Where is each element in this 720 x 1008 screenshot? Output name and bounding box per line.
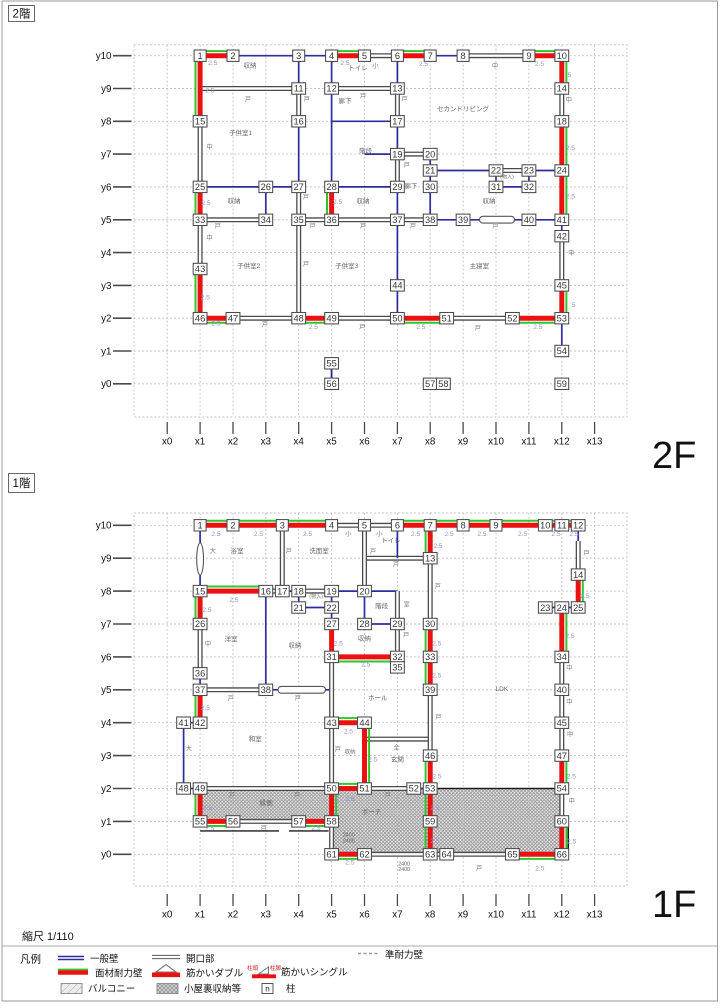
svg-text:61: 61 [326, 850, 336, 860]
svg-text:子供室2: 子供室2 [237, 261, 261, 270]
svg-text:2.5: 2.5 [201, 705, 210, 712]
svg-text:49: 49 [326, 313, 336, 323]
svg-text:5: 5 [572, 302, 576, 309]
svg-text:y5: y5 [101, 685, 112, 696]
svg-text:x9: x9 [458, 437, 468, 448]
svg-text:x1: x1 [195, 437, 205, 448]
svg-text:x12: x12 [554, 910, 570, 921]
svg-text:2.5: 2.5 [205, 88, 214, 95]
svg-text:収納: 収納 [483, 196, 496, 205]
svg-text:筋かいシングル: 筋かいシングル [281, 967, 348, 979]
svg-text:12: 12 [326, 84, 336, 94]
svg-text:2.5: 2.5 [333, 199, 342, 206]
svg-text:54: 54 [557, 346, 567, 356]
svg-text:戸: 戸 [402, 96, 408, 103]
svg-text:42: 42 [557, 231, 567, 241]
svg-text:2.5: 2.5 [533, 324, 542, 331]
svg-text:57: 57 [294, 817, 304, 827]
svg-text:x11: x11 [521, 910, 536, 921]
svg-text:柱: 柱 [286, 983, 296, 995]
svg-text:14: 14 [573, 570, 583, 580]
svg-text:x1: x1 [195, 910, 205, 921]
svg-text:戸: 戸 [286, 548, 292, 555]
svg-text:48: 48 [294, 313, 304, 323]
svg-text:10: 10 [540, 521, 550, 531]
svg-text:2.5: 2.5 [445, 531, 454, 538]
svg-text:59: 59 [425, 817, 435, 827]
svg-text:y3: y3 [101, 281, 112, 292]
svg-text:2.5: 2.5 [303, 531, 312, 538]
svg-text:2.5: 2.5 [432, 641, 441, 648]
svg-text:15: 15 [195, 117, 205, 127]
svg-text:36: 36 [326, 215, 336, 225]
svg-text:37: 37 [195, 685, 205, 695]
svg-text:2: 2 [230, 51, 235, 61]
svg-text:17: 17 [392, 117, 402, 127]
svg-text:中: 中 [566, 698, 572, 706]
svg-text:43: 43 [326, 718, 336, 728]
svg-text:1F: 1F [652, 884, 696, 926]
svg-text:x7: x7 [392, 437, 402, 448]
svg-text:x2: x2 [228, 437, 238, 448]
svg-text:38: 38 [261, 685, 271, 695]
svg-text:y1: y1 [101, 346, 111, 357]
svg-text:x10: x10 [488, 437, 504, 448]
svg-text:小: 小 [376, 530, 383, 538]
svg-text:戸: 戸 [476, 866, 482, 873]
svg-text:2.5: 2.5 [205, 826, 214, 833]
svg-text:17: 17 [277, 586, 287, 596]
svg-text:2.5: 2.5 [416, 324, 425, 331]
svg-text:59: 59 [557, 379, 567, 389]
svg-text:2.5: 2.5 [432, 774, 441, 781]
svg-text:39: 39 [425, 685, 435, 695]
svg-text:準耐力壁: 準耐力壁 [385, 949, 424, 961]
svg-text:36: 36 [195, 669, 205, 679]
svg-text:26: 26 [261, 182, 271, 192]
svg-text:全: 全 [394, 744, 401, 752]
svg-text:31: 31 [326, 652, 336, 662]
svg-text:1: 1 [198, 521, 203, 531]
svg-text:2.5: 2.5 [411, 531, 420, 538]
svg-text:戸: 戸 [335, 747, 341, 754]
svg-text:2.5: 2.5 [203, 805, 212, 812]
svg-text:8: 8 [461, 521, 466, 531]
svg-text:y8: y8 [101, 117, 112, 128]
svg-text:2階: 2階 [13, 7, 31, 21]
svg-text:6: 6 [395, 521, 400, 531]
svg-text:50: 50 [326, 784, 336, 794]
svg-text:収納: 収納 [288, 641, 301, 650]
svg-text:18: 18 [557, 117, 567, 127]
svg-text:2.5: 2.5 [254, 531, 263, 538]
svg-text:(物入): (物入) [500, 173, 514, 181]
svg-text:44: 44 [359, 718, 369, 728]
svg-text:2.5: 2.5 [430, 805, 439, 812]
svg-text:33: 33 [425, 652, 435, 662]
svg-text:33: 33 [195, 215, 205, 225]
svg-text:戸: 戸 [245, 97, 251, 104]
svg-text:x6: x6 [359, 437, 370, 448]
svg-text:y0: y0 [101, 379, 112, 390]
svg-text:20: 20 [425, 149, 435, 159]
svg-text:56: 56 [326, 379, 336, 389]
svg-text:y6: y6 [101, 182, 112, 193]
svg-text:55: 55 [326, 359, 336, 369]
svg-text:2.5: 2.5 [477, 531, 486, 538]
svg-text:中: 中 [566, 664, 572, 672]
svg-text:66: 66 [557, 850, 567, 860]
svg-text:2.5: 2.5 [566, 193, 575, 200]
svg-text:階段: 階段 [375, 601, 389, 610]
svg-text:戸: 戸 [393, 562, 399, 569]
svg-text:中: 中 [568, 249, 574, 257]
svg-text:2.5: 2.5 [419, 61, 428, 68]
svg-text:トイレ: トイレ [381, 538, 401, 545]
svg-text:25: 25 [573, 603, 583, 613]
svg-text:7: 7 [428, 51, 433, 61]
svg-text:29: 29 [392, 182, 402, 192]
svg-text:1: 1 [198, 51, 203, 61]
svg-text:26: 26 [195, 619, 205, 629]
svg-text:2.5: 2.5 [433, 543, 442, 550]
svg-text:28: 28 [359, 619, 369, 629]
svg-text:65: 65 [507, 850, 517, 860]
svg-text:戸: 戸 [360, 93, 366, 100]
svg-text:凡例: 凡例 [20, 953, 41, 966]
svg-text:n: n [265, 985, 269, 994]
svg-text:31: 31 [491, 182, 501, 192]
svg-text:縮尺 1/110: 縮尺 1/110 [22, 929, 74, 943]
svg-text:2.5: 2.5 [312, 825, 321, 832]
svg-text:2.5: 2.5 [535, 866, 544, 873]
svg-text:52: 52 [507, 313, 517, 323]
svg-text:34: 34 [557, 652, 567, 662]
svg-text:x13: x13 [587, 910, 603, 921]
svg-text:13: 13 [392, 84, 402, 94]
svg-text:x3: x3 [261, 437, 272, 448]
svg-text:2.5: 2.5 [368, 757, 377, 764]
svg-text:x6: x6 [359, 910, 370, 921]
svg-text:24: 24 [557, 166, 567, 176]
svg-text:浴室: 浴室 [231, 546, 245, 555]
svg-text:46: 46 [195, 313, 205, 323]
svg-text:25: 25 [195, 182, 205, 192]
svg-text:41: 41 [557, 215, 567, 225]
svg-text:y2: y2 [101, 314, 111, 325]
svg-text:2.5: 2.5 [518, 531, 527, 538]
svg-text:9: 9 [493, 521, 498, 531]
svg-text:大: 大 [210, 547, 216, 555]
svg-text:50: 50 [392, 313, 402, 323]
svg-text:廊下: 廊下 [405, 181, 419, 190]
svg-text:戸: 戸 [583, 550, 589, 557]
svg-text:32: 32 [524, 182, 534, 192]
svg-text:2.5: 2.5 [567, 774, 576, 781]
svg-text:一般壁: 一般壁 [90, 953, 119, 965]
svg-text:2.5: 2.5 [552, 531, 561, 538]
svg-text:x4: x4 [294, 437, 305, 448]
svg-text:19: 19 [326, 586, 336, 596]
svg-text:2.5: 2.5 [565, 633, 574, 640]
svg-text:戸: 戸 [435, 714, 441, 721]
svg-text:2.5: 2.5 [432, 673, 441, 680]
svg-text:9: 9 [526, 51, 531, 61]
svg-text:6: 6 [395, 51, 400, 61]
svg-text:19: 19 [392, 149, 402, 159]
svg-text:x5: x5 [326, 910, 337, 921]
svg-text:小屋裏収納等: 小屋裏収納等 [184, 983, 242, 995]
svg-text:戸: 戸 [229, 793, 235, 800]
svg-text:x0: x0 [162, 437, 173, 448]
svg-text:2.5: 2.5 [202, 607, 211, 614]
svg-text:52: 52 [409, 784, 419, 794]
svg-text:和室: 和室 [249, 734, 263, 743]
svg-text:収納: 収納 [357, 196, 370, 205]
svg-text:23: 23 [524, 166, 534, 176]
svg-text:小: 小 [372, 62, 379, 70]
svg-text:58: 58 [326, 817, 336, 827]
svg-text:18: 18 [294, 586, 304, 596]
svg-text:収納: 収納 [358, 634, 371, 643]
svg-text:2.5: 2.5 [334, 641, 343, 648]
svg-text:27: 27 [326, 619, 336, 629]
svg-text:戸: 戸 [228, 696, 234, 703]
svg-text:x10: x10 [488, 910, 504, 921]
svg-text:5: 5 [336, 797, 340, 804]
svg-text:27: 27 [294, 182, 304, 192]
svg-text:2.5: 2.5 [201, 295, 210, 302]
svg-text:戸: 戸 [492, 223, 498, 230]
svg-text:縁側: 縁側 [260, 798, 274, 807]
svg-text:13: 13 [425, 553, 435, 563]
svg-text:x8: x8 [425, 437, 436, 448]
svg-text:小: 小 [345, 530, 352, 538]
svg-text:64: 64 [442, 850, 452, 860]
svg-text:子供室1: 子供室1 [229, 128, 253, 137]
svg-text:x8: x8 [425, 910, 436, 921]
svg-text:戸: 戸 [309, 223, 315, 230]
svg-text:5: 5 [362, 51, 367, 61]
svg-text:玄関: 玄関 [391, 755, 404, 764]
svg-text:24: 24 [557, 603, 567, 613]
svg-text:中: 中 [205, 640, 211, 648]
svg-text:2.5: 2.5 [309, 324, 318, 331]
svg-text:中: 中 [492, 62, 498, 70]
svg-text:47: 47 [557, 751, 567, 761]
svg-text:15: 15 [195, 586, 205, 596]
svg-text:戸: 戸 [215, 223, 221, 230]
svg-text:トイレ: トイレ [348, 65, 368, 72]
svg-text:22: 22 [326, 603, 336, 613]
svg-text:45: 45 [557, 281, 567, 291]
svg-text:y2: y2 [101, 784, 111, 795]
svg-text:x2: x2 [228, 910, 238, 921]
svg-text:x5: x5 [326, 437, 337, 448]
svg-text:39: 39 [458, 215, 468, 225]
svg-text:2400: 2400 [398, 867, 410, 873]
svg-text:2.5: 2.5 [201, 200, 210, 207]
svg-text:大: 大 [186, 745, 192, 753]
svg-text:53: 53 [425, 784, 435, 794]
svg-text:2.5: 2.5 [211, 531, 220, 538]
svg-text:60: 60 [557, 817, 567, 827]
svg-text:筋かいダブル: 筋かいダブル [186, 968, 244, 980]
svg-text:収納: 収納 [244, 61, 257, 70]
svg-text:55: 55 [195, 817, 205, 827]
svg-text:戸: 戸 [403, 632, 409, 639]
svg-text:y1: y1 [101, 817, 111, 828]
svg-text:戸: 戸 [385, 793, 391, 800]
svg-text:20: 20 [359, 586, 369, 596]
svg-text:11: 11 [294, 84, 304, 94]
svg-text:32: 32 [392, 652, 402, 662]
svg-text:x7: x7 [392, 910, 402, 921]
svg-text:2.5: 2.5 [340, 60, 349, 67]
svg-text:戸: 戸 [303, 261, 309, 268]
svg-text:廊下: 廊下 [339, 96, 353, 105]
svg-text:34: 34 [261, 215, 271, 225]
svg-text:40: 40 [557, 685, 567, 695]
svg-text:2.5: 2.5 [569, 531, 578, 538]
svg-text:LDK: LDK [496, 686, 509, 693]
svg-text:46: 46 [425, 751, 435, 761]
svg-text:戸: 戸 [303, 194, 309, 201]
svg-text:5: 5 [362, 521, 367, 531]
svg-text:中: 中 [569, 797, 575, 805]
svg-text:2.5: 2.5 [430, 838, 439, 845]
svg-text:4: 4 [329, 51, 334, 61]
svg-text:戸: 戸 [294, 793, 300, 800]
svg-text:主寝室: 主寝室 [470, 261, 490, 270]
svg-text:48: 48 [178, 784, 188, 794]
svg-text:2F: 2F [652, 435, 696, 477]
svg-text:38: 38 [425, 215, 435, 225]
svg-text:y5: y5 [101, 215, 112, 226]
svg-text:x12: x12 [554, 437, 570, 448]
svg-text:開口部: 開口部 [186, 953, 215, 965]
svg-text:戸: 戸 [360, 223, 366, 230]
svg-text:16: 16 [294, 117, 304, 127]
svg-text:2.5: 2.5 [345, 860, 354, 867]
svg-text:x0: x0 [162, 910, 173, 921]
svg-text:1階: 1階 [13, 476, 31, 490]
svg-text:11: 11 [557, 521, 567, 531]
svg-text:63: 63 [425, 850, 435, 860]
svg-text:洋室: 洋室 [225, 634, 239, 643]
svg-text:子供室3: 子供室3 [335, 261, 359, 270]
svg-text:x9: x9 [458, 910, 468, 921]
svg-text:14: 14 [557, 84, 567, 94]
svg-text:x4: x4 [294, 910, 305, 921]
svg-text:12: 12 [573, 521, 583, 531]
svg-text:洗面室: 洗面室 [309, 546, 329, 555]
svg-text:2400: 2400 [343, 838, 355, 844]
svg-text:中: 中 [567, 731, 573, 739]
svg-text:2.5: 2.5 [211, 321, 220, 328]
svg-text:2.5: 2.5 [361, 661, 370, 668]
svg-text:戸: 戸 [410, 223, 416, 230]
svg-text:y9: y9 [101, 554, 111, 565]
svg-text:2.5: 2.5 [229, 597, 238, 604]
svg-text:戸: 戸 [435, 584, 441, 591]
svg-text:2: 2 [230, 521, 235, 531]
svg-text:2.5: 2.5 [535, 61, 544, 68]
svg-text:y10: y10 [96, 521, 112, 532]
svg-text:室: 室 [404, 601, 410, 609]
svg-text:戸: 戸 [359, 324, 365, 331]
svg-text:戸: 戸 [295, 695, 301, 702]
svg-text:戸: 戸 [370, 549, 376, 556]
svg-text:8: 8 [461, 51, 466, 61]
svg-text:40: 40 [524, 215, 534, 225]
svg-text:35: 35 [392, 663, 402, 673]
svg-text:柱脚: 柱脚 [270, 964, 282, 972]
svg-text:2.5: 2.5 [567, 839, 576, 846]
svg-text:バルコニー: バルコニー [88, 984, 135, 995]
svg-text:4: 4 [329, 521, 334, 531]
svg-text:y0: y0 [101, 850, 112, 861]
svg-text:2.5: 2.5 [580, 593, 589, 600]
svg-text:x13: x13 [587, 437, 603, 448]
svg-text:面材耐力壁: 面材耐力壁 [95, 968, 143, 980]
svg-text:中: 中 [206, 234, 212, 242]
svg-text:ポーチ: ポーチ [362, 808, 382, 816]
svg-text:(物入): (物入) [309, 592, 323, 600]
svg-text:2.5: 2.5 [344, 729, 353, 736]
svg-text:23: 23 [540, 603, 550, 613]
svg-text:y8: y8 [101, 587, 112, 598]
svg-text:ホール: ホール [368, 694, 388, 702]
svg-text:戸: 戸 [404, 162, 410, 169]
svg-text:中: 中 [206, 143, 212, 151]
svg-text:戸: 戸 [304, 96, 310, 103]
svg-text:53: 53 [557, 313, 567, 323]
svg-text:y4: y4 [101, 248, 112, 259]
svg-text:28: 28 [326, 182, 336, 192]
svg-text:中: 中 [566, 96, 572, 104]
svg-text:戸: 戸 [261, 826, 267, 833]
svg-text:2.5: 2.5 [345, 796, 354, 803]
svg-text:x3: x3 [261, 910, 272, 921]
svg-text:37: 37 [392, 215, 402, 225]
svg-text:41: 41 [178, 718, 188, 728]
svg-text:柱頭: 柱頭 [247, 964, 259, 972]
svg-text:y9: y9 [101, 84, 111, 95]
svg-text:21: 21 [425, 166, 435, 176]
svg-text:35: 35 [294, 215, 304, 225]
svg-text:戸: 戸 [262, 322, 268, 329]
svg-text:y7: y7 [101, 150, 111, 161]
svg-text:47: 47 [228, 313, 238, 323]
svg-text:30: 30 [425, 619, 435, 629]
svg-text:x11: x11 [521, 437, 536, 448]
svg-text:45: 45 [557, 718, 567, 728]
svg-text:y6: y6 [101, 652, 112, 663]
svg-text:y4: y4 [101, 718, 112, 729]
svg-text:収納: 収納 [228, 196, 241, 205]
svg-text:y10: y10 [96, 51, 112, 62]
svg-text:51: 51 [442, 313, 452, 323]
svg-text:54: 54 [557, 784, 567, 794]
svg-text:2.5: 2.5 [566, 145, 575, 152]
svg-text:16: 16 [261, 586, 271, 596]
svg-text:y7: y7 [101, 619, 111, 630]
svg-text:30: 30 [425, 182, 435, 192]
svg-text:5: 5 [568, 72, 572, 79]
svg-text:7: 7 [428, 521, 433, 531]
svg-text:2.5: 2.5 [208, 60, 217, 67]
